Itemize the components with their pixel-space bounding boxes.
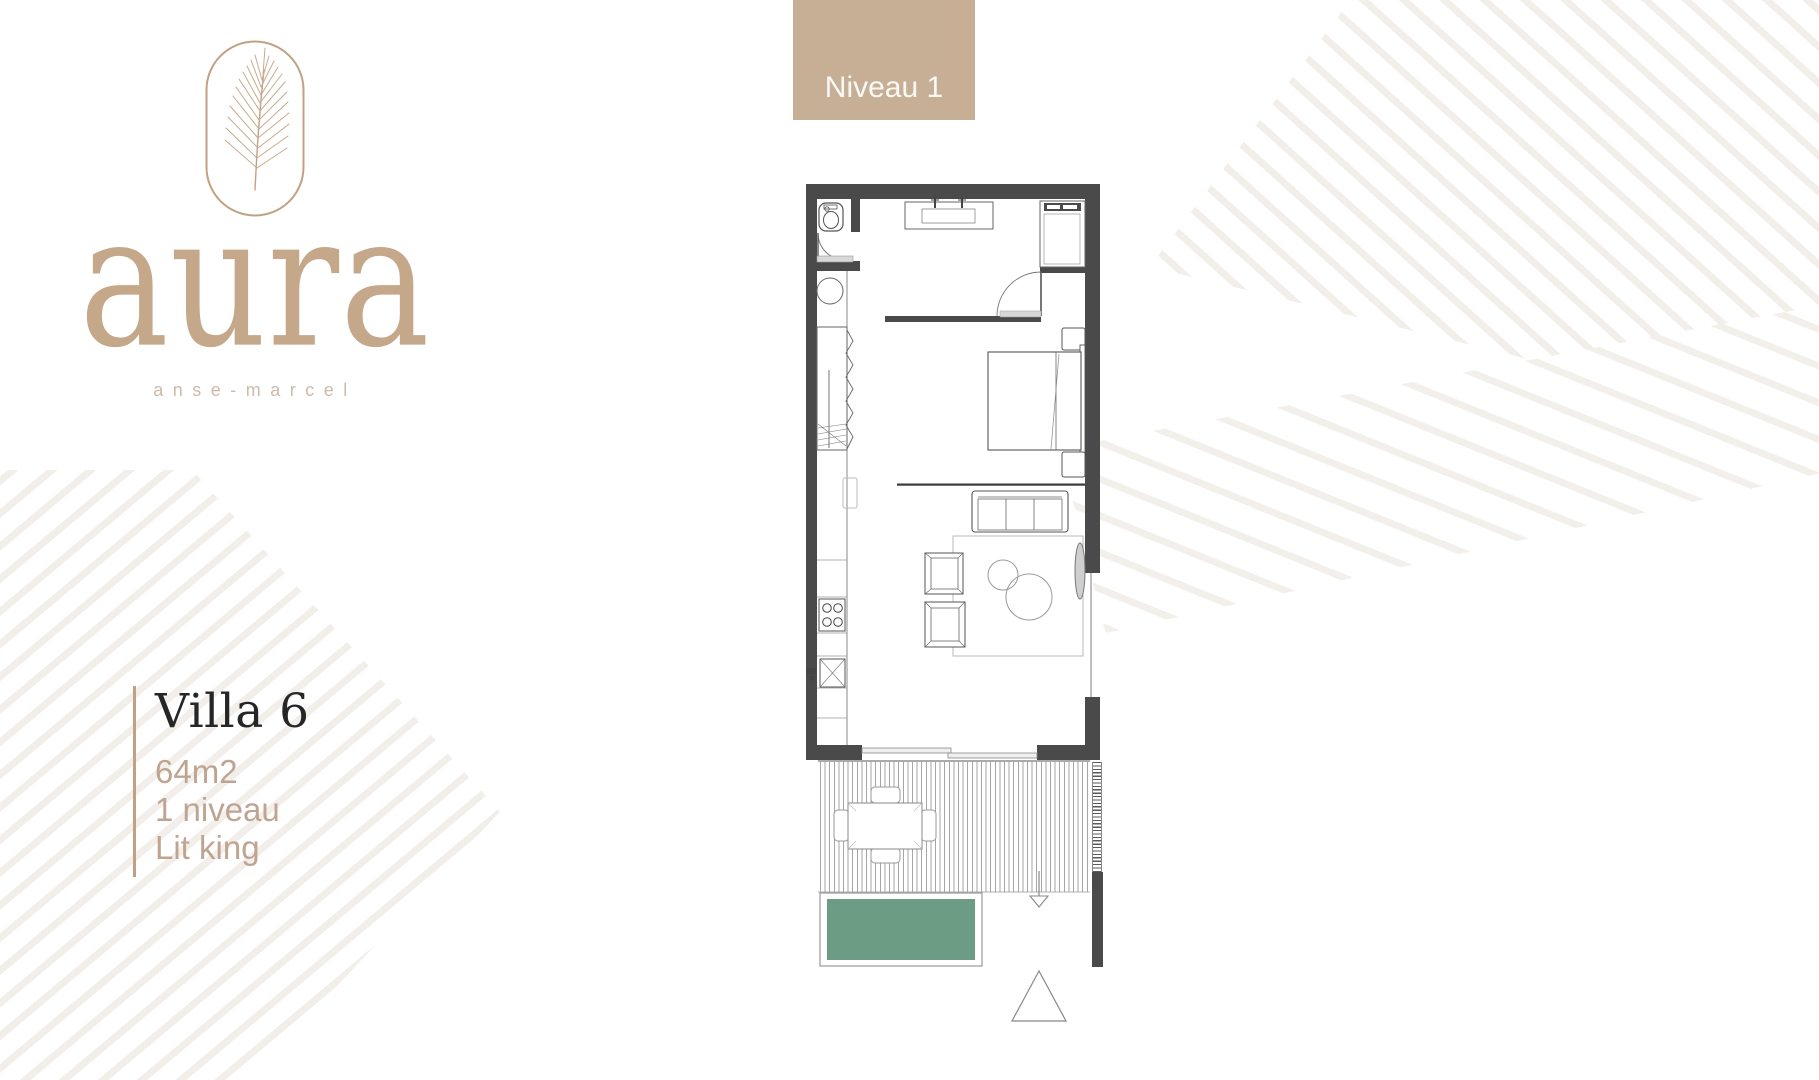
brochure-page: aura anse-marcel Niveau 1 Villa 6 64m2 1… [0,0,1819,1080]
washing-machine [817,278,843,304]
walls [806,184,1100,760]
palm-frond-watermark-right [1150,0,1819,430]
washbasin-vanity [905,196,993,229]
sofa [972,491,1068,532]
outdoor-dining-set [834,787,936,863]
villa-floor-plan [795,150,1115,1030]
level-tab-label: Niveau 1 [825,71,943,105]
brand-logo: aura anse-marcel [55,40,455,401]
wardrobe [817,327,853,450]
rug [953,536,1083,656]
shower [1040,201,1085,267]
villa-levels: 1 niveau [155,791,310,829]
villa-area: 64m2 [155,753,310,791]
level-tab[interactable]: Niveau 1 [793,0,975,120]
sliding-glass-door [862,748,1037,758]
palm-frond-watermark-right-lower [1060,230,1819,650]
wc-counter [817,256,853,262]
villa-title: Villa 6 [155,688,310,735]
entrance-arrow [1030,871,1048,907]
garden-wall [1092,872,1103,967]
villa-bed: Lit king [155,829,310,867]
coffee-table [988,560,1018,590]
king-bed [988,345,1085,458]
bedroom-door [997,272,1041,317]
brand-name: aura [55,208,455,358]
wall-cabinet [843,478,857,508]
pool [820,893,982,966]
villa-info: Villa 6 64m2 1 niveau Lit king [133,686,310,877]
armchair [925,553,963,594]
pivot-door [1075,543,1085,599]
cooktop [819,599,845,631]
coffee-table [1006,574,1052,620]
north-triangle [1012,971,1066,1021]
nightstand [1062,452,1085,477]
kitchen-counter [817,560,847,718]
toilet [819,203,843,231]
armchair [925,602,965,647]
